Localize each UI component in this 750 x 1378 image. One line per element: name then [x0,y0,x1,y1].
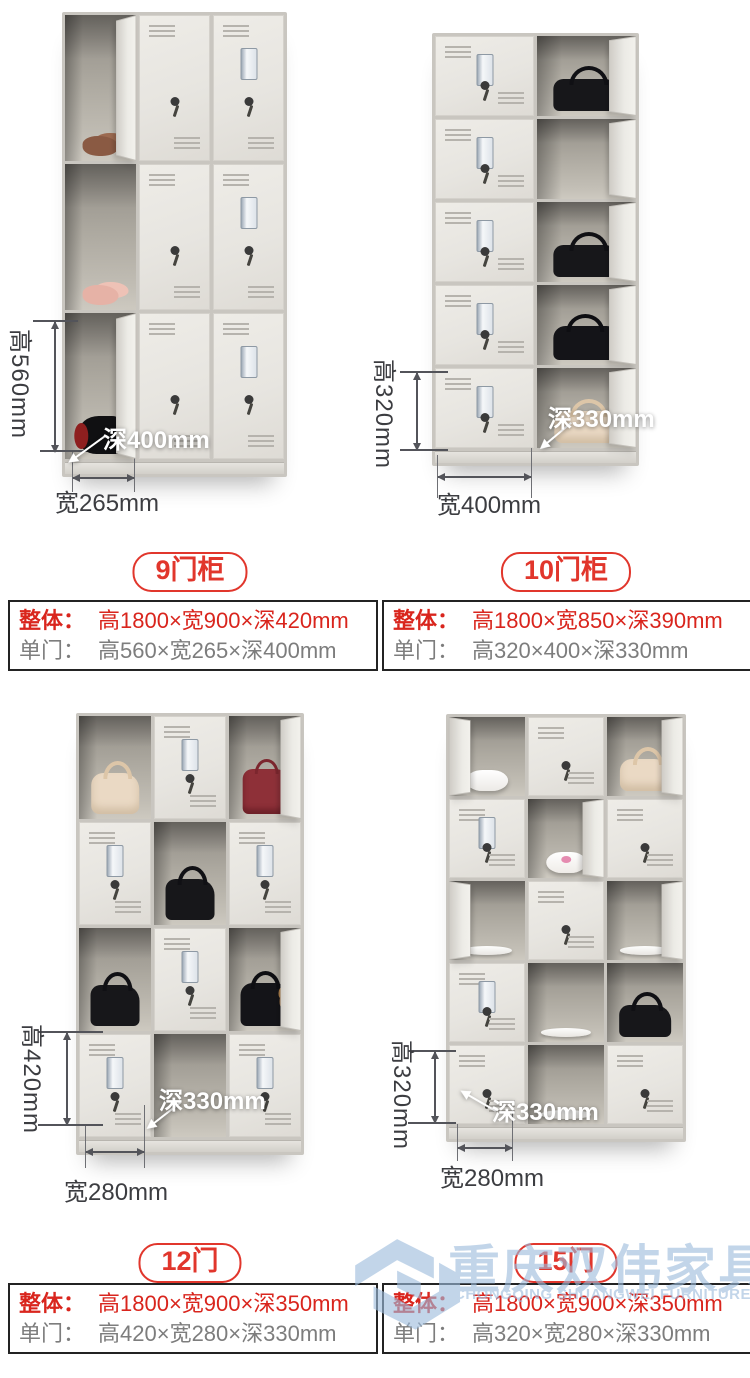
spec-label-overall: 整体： [393,606,459,636]
vent-slots-icon [149,323,175,336]
keyhole-lock-icon [480,164,489,173]
vent-slots-icon [647,854,673,867]
stored-item-bag-black [166,879,215,920]
width-dimension-line [73,477,134,479]
vent-slots-icon [223,25,249,38]
locker-door [213,313,284,459]
dimension-guide [85,1126,86,1168]
open-door-panel [609,202,636,282]
dimension-guide [531,448,532,498]
stored-item-bowl-pink [546,852,586,873]
vent-slots-icon [265,1113,291,1126]
depth-arrow [546,422,572,444]
vent-slots-icon [265,901,291,914]
depth-dimension-label: 深330mm [492,1092,599,1127]
spec-label-overall: 整体： [19,606,85,636]
product-badge: 12门 [138,1243,241,1283]
keyhole-lock-icon [111,880,120,889]
vent-slots-icon [498,92,524,105]
locker-door [528,881,604,960]
locker-compartment [528,799,604,878]
vent-slots-icon [174,435,200,448]
vent-slots-icon [617,1055,643,1068]
locker-compartment [79,928,151,1031]
locker-door [449,1045,525,1124]
stored-item-plate [541,1028,591,1037]
vent-slots-icon [115,901,141,914]
product-detail-page: 高560mm 宽265mm 深400mm 9门柜 整体： 高1800×宽900×… [0,0,750,1378]
locker-door [435,119,534,199]
locker-door [528,717,604,796]
stored-item-bag-black [91,985,140,1026]
dimension-guide [72,452,73,492]
dimension-tick [38,1124,103,1126]
vent-slots-icon [149,174,175,187]
width-dimension-line [458,1147,512,1149]
dimension-guide [134,446,135,492]
spec-row-overall: 整体： 高1800×宽900×深420mm [19,606,376,636]
locker-door [449,963,525,1042]
stored-item-bag-red [243,769,288,814]
keyhole-lock-icon [244,395,253,404]
vent-slots-icon [445,378,471,391]
stored-item-bag-cream [620,759,670,791]
spec-row-overall: 整体： 高1800×宽850×深390mm [393,606,750,636]
keyhole-lock-icon [641,843,650,852]
product-badge: 9门柜 [132,552,247,592]
locker-compartment [528,1045,604,1124]
locker-door [79,822,151,925]
label-holder [476,386,493,418]
spec-label-overall: 整体： [393,1289,459,1319]
vent-slots-icon [498,341,524,354]
locker-door [435,368,534,448]
locker-door [79,1034,151,1137]
stored-item-bag-black-teddy [553,326,620,360]
label-holder [476,303,493,335]
vent-slots-icon [164,726,190,739]
spec-row-single-door: 单门： 高560×宽265×深400mm [19,636,376,666]
dimension-guide [437,455,438,498]
locker-door [213,164,284,310]
width-dimension-label: 宽265mm [55,483,159,518]
spec-row-overall: 整体： 高1800×宽900×深350mm [19,1289,376,1319]
vent-slots-icon [538,727,564,740]
height-dimension-label: 高560mm [5,329,40,439]
dimension-tick [408,1050,456,1052]
locker-door [213,15,284,161]
spec-value-overall: 高1800×宽850×深390mm [472,606,723,636]
vent-slots-icon [248,137,274,150]
label-holder [476,54,493,86]
label-holder [182,951,199,983]
stored-item-bowl [466,770,508,791]
open-door-panel [609,368,636,448]
locker-door [449,799,525,878]
spec-value-single-door: 高320×宽280×深330mm [472,1319,710,1349]
vent-slots-icon [459,973,485,986]
cabinet-grid [65,15,284,459]
stored-item-bag-black [553,79,620,111]
dimension-guide [144,1105,145,1168]
dimension-guide [457,1124,458,1161]
locker-compartment [607,881,683,960]
locker-compartment [537,285,636,365]
locker-door [229,822,301,925]
locker-door [435,285,534,365]
keyhole-lock-icon [261,1092,270,1101]
locker-compartment [154,1034,226,1137]
label-holder [240,48,257,80]
vent-slots-icon [190,1007,216,1020]
spec-value-single-door: 高420×宽280×深330mm [98,1319,336,1349]
locker-compartment [65,164,136,310]
cabinet-base [435,451,636,463]
cabinet-photo-12-door [76,713,304,1155]
stored-item-plate [462,946,512,955]
brand-name-en: CHONGQING SHUANGWEI FURNITURE [454,1286,750,1303]
locker-compartment [229,928,301,1031]
cabinet-grid [449,717,683,1124]
vent-slots-icon [489,854,515,867]
keyhole-lock-icon [170,246,179,255]
stored-item-bag-black [619,1005,671,1037]
keyhole-lock-icon [483,1089,492,1098]
locker-compartment [537,368,636,448]
spec-table: 整体： 高1800×宽900×深350mm 单门： 高420×宽280×深330… [8,1283,378,1354]
locker-door [229,1034,301,1137]
spec-label-single-door: 单门： [393,1319,459,1349]
vent-slots-icon [498,258,524,271]
vent-slots-icon [498,175,524,188]
brand-name-cn: 重庆双伟家具 [448,1228,750,1303]
vent-slots-icon [174,137,200,150]
height-dimension-line [66,1033,68,1125]
depth-dimension-label: 深330mm [159,1081,266,1116]
dimension-tick [400,371,448,373]
height-dimension-label: 高420mm [17,1024,52,1134]
vent-slots-icon [248,435,274,448]
vent-slots-icon [498,424,524,437]
open-door-panel [609,36,636,116]
vent-slots-icon [489,1100,515,1113]
keyhole-lock-icon [170,395,179,404]
height-dimension-line [54,322,56,452]
keyhole-lock-icon [483,1007,492,1016]
dimension-tick [408,1122,456,1124]
dimension-tick [33,320,78,322]
keyhole-lock-icon [186,774,195,783]
keyhole-lock-icon [186,986,195,995]
height-dimension-label: 高320mm [387,1040,422,1150]
locker-compartment [607,717,683,796]
spec-value-overall: 高1800×宽900×深420mm [98,606,349,636]
dimension-tick [400,449,448,451]
label-holder [476,137,493,169]
open-door-panel [609,285,636,365]
locker-compartment [449,881,525,960]
vent-slots-icon [248,286,274,299]
locker-compartment [65,313,136,459]
dimension-guide [512,1110,513,1161]
stored-item-boot [78,416,123,454]
vent-slots-icon [223,323,249,336]
open-door-panel [116,313,136,459]
spec-table: 整体： 高1800×宽900×深420mm 单门： 高560×宽265×深400… [8,600,378,671]
locker-door [139,15,210,161]
keyhole-lock-icon [562,925,571,934]
width-dimension-label: 宽400mm [437,485,541,520]
vent-slots-icon [89,1044,115,1057]
cabinet-photo-10-door [432,33,639,466]
label-holder [240,346,257,378]
keyhole-lock-icon [480,247,489,256]
product-section-10-door: 高320mm 宽400mm 深330mm 10门柜 整体： 高1800×宽850… [0,0,750,1378]
keyhole-lock-icon [170,97,179,106]
vent-slots-icon [445,46,471,59]
vent-slots-icon [568,936,594,949]
locker-compartment [537,202,636,282]
depth-arrow [75,436,105,459]
brand-logo-icon [334,1226,476,1344]
keyhole-lock-icon [261,880,270,889]
width-dimension-label: 宽280mm [440,1158,544,1193]
stored-item-bag-cream [554,411,619,443]
spec-value-single-door: 高320×400×深330mm [472,636,688,666]
locker-compartment [537,119,636,199]
spec-table: 整体： 高1800×宽900×深350mm 单门： 高320×宽280×深330… [382,1283,750,1354]
keyhole-lock-icon [483,843,492,852]
spec-row-single-door: 单门： 高320×宽280×深330mm [393,1319,750,1349]
stored-item-shoes-brown [82,136,119,156]
open-door-panel [449,717,470,796]
cabinet-base [65,462,284,474]
stored-item-bag-black [553,245,620,277]
vent-slots-icon [239,832,265,845]
cabinet-photo-15-door [446,714,686,1142]
keyhole-lock-icon [562,761,571,770]
locker-compartment [229,716,301,819]
label-holder [182,739,199,771]
locker-door [435,36,534,116]
spec-label-single-door: 单门： [19,1319,85,1349]
open-door-panel [583,799,604,878]
keyhole-lock-icon [111,1092,120,1101]
depth-dimension-label: 深400mm [103,420,210,455]
vent-slots-icon [445,295,471,308]
vent-slots-icon [459,809,485,822]
spec-value-overall: 高1800×宽900×深350mm [98,1289,349,1319]
spec-value-overall: 高1800×宽900×深350mm [472,1289,723,1319]
cabinet-grid [435,36,636,448]
label-holder [479,817,496,849]
locker-door [139,313,210,459]
keyhole-lock-icon [480,413,489,422]
depth-dimension-label: 深330mm [548,399,655,434]
width-dimension-line [438,476,531,478]
height-dimension-line [434,1052,436,1123]
locker-compartment [528,963,604,1042]
product-section-12-door: 高420mm 宽280mm 深330mm 12门 整体： 高1800×宽900×… [0,0,750,1378]
stored-item-bag-cream [91,773,139,814]
locker-compartment [154,822,226,925]
locker-door [607,799,683,878]
spec-value-single-door: 高560×宽265×深400mm [98,636,336,666]
vent-slots-icon [239,1044,265,1057]
vent-slots-icon [164,938,190,951]
locker-door [139,164,210,310]
width-dimension-line [86,1151,144,1153]
vent-slots-icon [445,129,471,142]
locker-compartment [607,963,683,1042]
label-holder [479,981,496,1013]
product-section-15-door: 高320mm 宽280mm 深330mm 15门 整体： 高1800×宽900×… [0,0,750,1378]
open-door-panel [281,716,301,819]
locker-compartment [449,717,525,796]
keyhole-lock-icon [244,97,253,106]
depth-arrow [468,1094,497,1112]
stored-item-bag-black-teddy [241,983,290,1026]
locker-door [607,1045,683,1124]
vent-slots-icon [149,25,175,38]
product-badge: 10门柜 [501,552,631,592]
open-door-panel [609,119,636,199]
spec-row-single-door: 单门： 高420×宽280×深330mm [19,1319,376,1349]
brand-watermark: 重庆双伟家具 CHONGQING SHUANGWEI FURNITURE [330,1222,750,1362]
spec-label-single-door: 单门： [19,636,85,666]
vent-slots-icon [459,1055,485,1068]
vent-slots-icon [115,1113,141,1126]
locker-compartment [537,36,636,116]
locker-door [154,928,226,1031]
vent-slots-icon [568,772,594,785]
locker-door [154,716,226,819]
spec-label-overall: 整体： [19,1289,85,1319]
open-door-panel [662,717,683,796]
label-holder [257,1057,274,1089]
cabinet-base [449,1127,683,1139]
stored-item-plate [620,946,670,955]
keyhole-lock-icon [244,246,253,255]
cabinet-grid [79,716,301,1137]
height-dimension-line [416,373,418,450]
cabinet-photo-9-door [62,12,287,477]
height-dimension-label: 高320mm [369,359,404,469]
width-dimension-label: 宽280mm [64,1172,168,1207]
vent-slots-icon [174,286,200,299]
open-door-panel [662,881,683,960]
vent-slots-icon [617,809,643,822]
vent-slots-icon [538,891,564,904]
label-holder [107,1057,124,1089]
keyhole-lock-icon [641,1089,650,1098]
vent-slots-icon [89,832,115,845]
label-holder [476,220,493,252]
locker-door [435,202,534,282]
keyhole-lock-icon [480,330,489,339]
dimension-tick [38,1031,103,1033]
depth-arrow [153,1102,181,1125]
vent-slots-icon [190,795,216,808]
product-section-9-door: 高560mm 宽265mm 深400mm 9门柜 整体： 高1800×宽900×… [0,0,750,1378]
spec-row-single-door: 单门： 高320×400×深330mm [393,636,750,666]
spec-label-single-door: 单门： [393,636,459,666]
stored-item-shoes-pink [82,285,119,305]
stored-item-plate [541,1110,591,1119]
open-door-panel [116,15,136,161]
product-badge: 15门 [514,1243,617,1283]
dimension-tick [40,450,135,452]
spec-table: 整体： 高1800×宽850×深390mm 单门： 高320×400×深330m… [382,600,750,671]
spec-row-overall: 整体： 高1800×宽900×深350mm [393,1289,750,1319]
open-door-panel [281,928,301,1031]
locker-compartment [79,716,151,819]
cabinet-base [79,1140,301,1152]
vent-slots-icon [489,1018,515,1031]
keyhole-lock-icon [480,81,489,90]
locker-compartment [65,15,136,161]
open-door-panel [449,881,470,960]
vent-slots-icon [223,174,249,187]
label-holder [107,845,124,877]
vent-slots-icon [445,212,471,225]
label-holder [240,197,257,229]
label-holder [257,845,274,877]
vent-slots-icon [647,1100,673,1113]
